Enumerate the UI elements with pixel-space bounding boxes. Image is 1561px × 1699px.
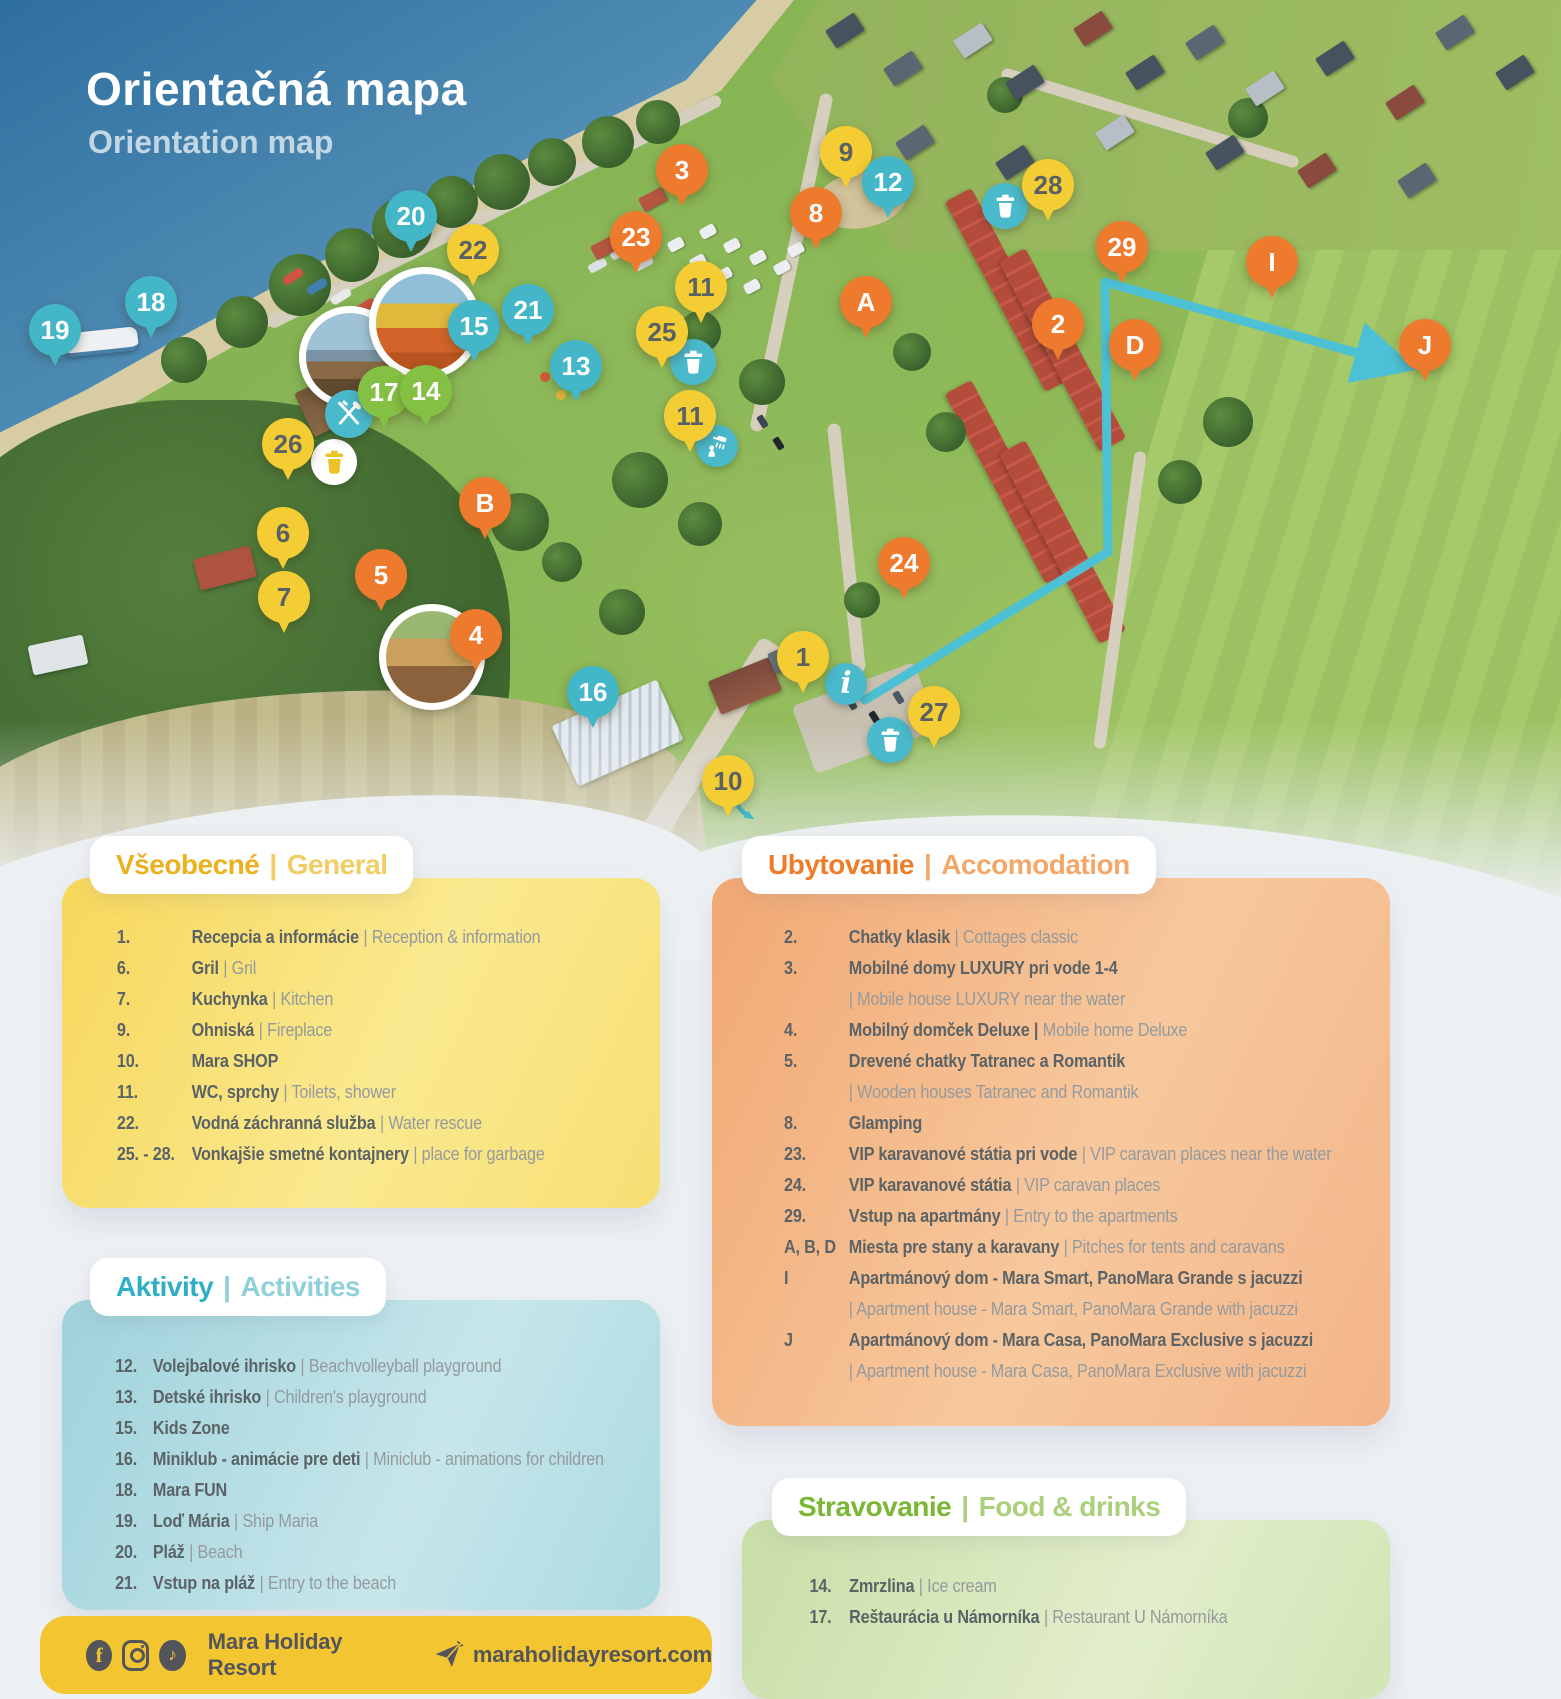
pin-label: 6 (276, 518, 290, 549)
tree (844, 582, 880, 618)
list-item: JApartmánový dom - Mara Casa, PanoMara E… (712, 1325, 1322, 1387)
list-item: 16.Miniklub - animácie pre deti| Miniclu… (62, 1444, 600, 1475)
map-pin-14: 14 (400, 365, 452, 417)
pin-label: 14 (412, 376, 441, 407)
list-item: IApartmánový dom - Mara Smart, PanoMara … (712, 1263, 1322, 1325)
tree (636, 100, 680, 144)
panel-header-activities: Aktivity|Activities (90, 1258, 386, 1316)
car (772, 436, 785, 451)
tent (722, 237, 741, 254)
pin-label: A (857, 287, 876, 318)
map-pin-21: 21 (502, 284, 554, 336)
map-pin-18: 18 (125, 276, 177, 328)
list-item: 18.Mara FUN (62, 1475, 600, 1506)
map-pin-16: 16 (567, 666, 619, 718)
list-item: A, B, DMiesta pre stany a karavany| Pitc… (712, 1232, 1322, 1263)
trash-icon (867, 717, 913, 763)
trash-icon (982, 183, 1028, 229)
pin-label: I (1268, 247, 1275, 278)
list-item: 21.Vstup na pláž| Entry to the beach (62, 1568, 600, 1599)
map-pin-24: 24 (878, 537, 930, 589)
caravan-shelter-roof (999, 440, 1126, 644)
tree (1228, 98, 1268, 138)
panel-header-accommodation: Ubytovanie|Accomodation (742, 836, 1156, 894)
panel-food-drinks: Stravovanie|Food & drinks 14.Zmrzlina| I… (742, 1520, 1390, 1699)
pin-label: 16 (579, 677, 608, 708)
road (827, 423, 866, 673)
send-icon (433, 1640, 463, 1670)
map-pin-19: 19 (29, 304, 81, 356)
pin-label: 23 (622, 222, 651, 253)
list-item: 11.WC, sprchy| Toilets, shower (62, 1077, 600, 1108)
map-pin-11: 11 (664, 390, 716, 442)
map-pin-29: 29 (1096, 221, 1148, 273)
list-item: 13.Detské ihrisko| Children's playground (62, 1382, 600, 1413)
pin-label: 29 (1108, 232, 1137, 263)
orientation-map-poster: i 191820221521131714263239812281125A229D… (0, 0, 1561, 1699)
map-pin-15: 15 (448, 300, 500, 352)
map-pin-6: 6 (257, 507, 309, 559)
tree (325, 228, 379, 282)
pin-label: 26 (274, 429, 303, 460)
list-item: 4.Mobilný domček Deluxe |Mobile home Del… (712, 1015, 1322, 1046)
list-item: 12.Volejbalové ihrisko| Beachvolleyball … (62, 1351, 600, 1382)
map-pin-4: 4 (450, 609, 502, 661)
map-pin-3: 3 (656, 144, 708, 196)
tree (599, 589, 645, 635)
pin-label: 17 (370, 377, 399, 408)
tree (474, 154, 530, 210)
pin-label: J (1418, 330, 1432, 361)
list-item: 3.Mobilné domy LUXURY pri vode 1-4| Mobi… (712, 953, 1322, 1015)
pin-label: 24 (890, 548, 919, 579)
pin-label: 1 (796, 642, 810, 673)
pin-label: 25 (648, 317, 677, 348)
pin-label: 7 (277, 582, 291, 613)
tiktok-icon: ♪ (159, 1640, 185, 1671)
pin-label: 10 (714, 766, 743, 797)
list-item: 5.Drevené chatky Tatranec a Romantik| Wo… (712, 1046, 1322, 1108)
map-pin-10: 10 (702, 755, 754, 807)
pin-label: 4 (469, 620, 483, 651)
pin-label: 11 (687, 272, 715, 303)
tree (612, 452, 668, 508)
list-item: 9.Ohniská| Fireplace (62, 1015, 600, 1046)
pin-label: 8 (809, 198, 823, 229)
map-pin-d: D (1109, 319, 1161, 371)
pin-label: 22 (459, 235, 488, 266)
map-pin-2: 2 (1032, 298, 1084, 350)
list-item: 24.VIP karavanové státia| VIP caravan pl… (712, 1170, 1322, 1201)
map-pin-28: 28 (1022, 159, 1074, 211)
trash-icon (311, 439, 357, 485)
list-item: 29.Vstup na apartmány| Entry to the apar… (712, 1201, 1322, 1232)
tree (739, 359, 785, 405)
footer-bar: f ♪ Mara Holiday Resort maraholidayresor… (40, 1616, 712, 1694)
pin-label: 15 (460, 311, 489, 342)
playground-equipment (540, 372, 550, 382)
map-pin-11: 11 (675, 261, 727, 313)
tent (666, 236, 685, 253)
map-pin-1: 1 (777, 631, 829, 683)
map-pin-j: J (1399, 319, 1451, 371)
map-pin-26: 26 (262, 418, 314, 470)
tent (698, 223, 717, 240)
general-list: 1.Recepcia a informácie| Reception & inf… (62, 922, 600, 1170)
pin-label: 9 (839, 137, 853, 168)
tree (678, 502, 722, 546)
pin-label: 13 (562, 351, 591, 382)
map-pin-13: 13 (550, 340, 602, 392)
list-item: 23.VIP karavanové státia pri vode| VIP c… (712, 1139, 1322, 1170)
title-en: Orientation map (88, 124, 467, 161)
panel-header-food-drinks: Stravovanie|Food & drinks (772, 1478, 1186, 1536)
pin-label: 19 (41, 315, 70, 346)
map-pin-23: 23 (610, 211, 662, 263)
pin-label: 21 (514, 295, 543, 326)
list-item: 19.Loď Mária| Ship Maria (62, 1506, 600, 1537)
panel-general: Všeobecné|General 1.Recepcia a informáci… (62, 878, 660, 1208)
pin-label: 11 (676, 401, 704, 432)
map-pin-8: 8 (790, 187, 842, 239)
instagram-icon (122, 1640, 149, 1671)
activities-list: 12.Volejbalové ihrisko| Beachvolleyball … (62, 1351, 600, 1599)
map-pin-25: 25 (636, 306, 688, 358)
facebook-icon: f (86, 1640, 112, 1671)
tree (926, 412, 966, 452)
list-item: 14.Zmrzlina| Ice cream (742, 1571, 1325, 1602)
tent (748, 249, 767, 266)
cottage (638, 187, 668, 212)
map-pin-27: 27 (908, 686, 960, 738)
list-item: 7.Kuchynka| Kitchen (62, 984, 600, 1015)
tent (742, 278, 761, 295)
map-pin-a: A (840, 276, 892, 328)
pin-label: D (1126, 330, 1145, 361)
map-pin-i: I (1246, 236, 1298, 288)
info-icon: i (825, 663, 867, 705)
list-item: 8.Glamping (712, 1108, 1322, 1139)
pin-label: B (476, 488, 495, 519)
accommodation-list: 2.Chatky klasik| Cottages classic 3.Mobi… (712, 922, 1322, 1387)
pin-label: 27 (920, 697, 949, 728)
list-item: 17.Reštaurácia u Námorníka| Restaurant U… (742, 1602, 1325, 1633)
pin-label: 3 (675, 155, 689, 186)
map-pin-20: 20 (385, 190, 437, 242)
list-item: 25. - 28.Vonkajšie smetné kontajnery| pl… (62, 1139, 600, 1170)
title-sk: Orientačná mapa (86, 62, 467, 116)
pin-label: 18 (137, 287, 166, 318)
panel-activities: Aktivity|Activities 12.Volejbalové ihris… (62, 1300, 660, 1610)
tree (582, 116, 634, 168)
list-item: 6.Gril| Gril (62, 953, 600, 984)
pin-label: 20 (397, 201, 426, 232)
pin-label: 2 (1051, 309, 1065, 340)
tree (542, 542, 582, 582)
website-url: maraholidayresort.com (473, 1642, 712, 1668)
food-list: 14.Zmrzlina| Ice cream 17.Reštaurácia u … (742, 1571, 1325, 1633)
list-item: 15.Kids Zone (62, 1413, 600, 1444)
tree (1158, 460, 1202, 504)
map-pin-b: B (459, 477, 511, 529)
list-item: 1.Recepcia a informácie| Reception & inf… (62, 922, 600, 953)
tree (1203, 397, 1253, 447)
map-pin-22: 22 (447, 224, 499, 276)
tree (161, 337, 207, 383)
panel-header-general: Všeobecné|General (90, 836, 413, 894)
tree (528, 138, 576, 186)
pin-label: 28 (1034, 170, 1063, 201)
page-title: Orientačná mapa Orientation map (86, 62, 467, 161)
list-item: 22.Vodná záchranná služba| Water rescue (62, 1108, 600, 1139)
info-glyph: i (840, 669, 851, 699)
map-pin-12: 12 (862, 156, 914, 208)
list-item: 2.Chatky klasik| Cottages classic (712, 922, 1322, 953)
aerial-map: i 191820221521131714263239812281125A229D… (0, 0, 1561, 960)
list-item: 10.Mara SHOP (62, 1046, 600, 1077)
tree (893, 333, 931, 371)
pin-label: 12 (874, 167, 903, 198)
map-pin-7: 7 (258, 571, 310, 623)
list-item: 20.Pláž| Beach (62, 1537, 600, 1568)
tree (216, 296, 268, 348)
pin-label: 5 (374, 560, 388, 591)
panel-accommodation: Ubytovanie|Accomodation 2.Chatky klasik|… (712, 878, 1390, 1426)
brand-name: Mara Holiday Resort (208, 1629, 385, 1681)
map-pin-5: 5 (355, 549, 407, 601)
